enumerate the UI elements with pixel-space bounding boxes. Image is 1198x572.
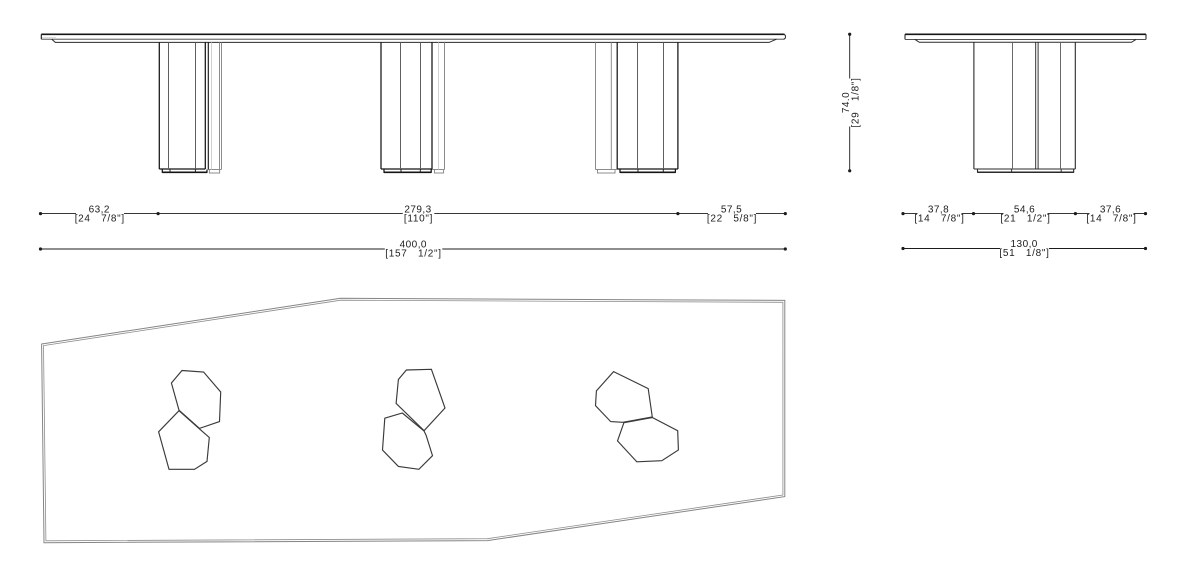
svg-text:[21 1/2"]: [21 1/2"] — [1000, 213, 1050, 224]
svg-text:[157 1/2"]: [157 1/2"] — [385, 249, 441, 260]
svg-text:[24 7/8"]: [24 7/8"] — [75, 213, 125, 224]
svg-text:[29 1/8"]: [29 1/8"] — [850, 77, 861, 127]
svg-text:[22 5/8"]: [22 5/8"] — [707, 213, 757, 224]
svg-text:[51 1/8"]: [51 1/8"] — [999, 248, 1049, 259]
svg-text:[110"]: [110"] — [404, 213, 433, 224]
svg-text:[14 7/8"]: [14 7/8"] — [1086, 213, 1136, 224]
svg-text:[14 7/8"]: [14 7/8"] — [914, 213, 964, 224]
